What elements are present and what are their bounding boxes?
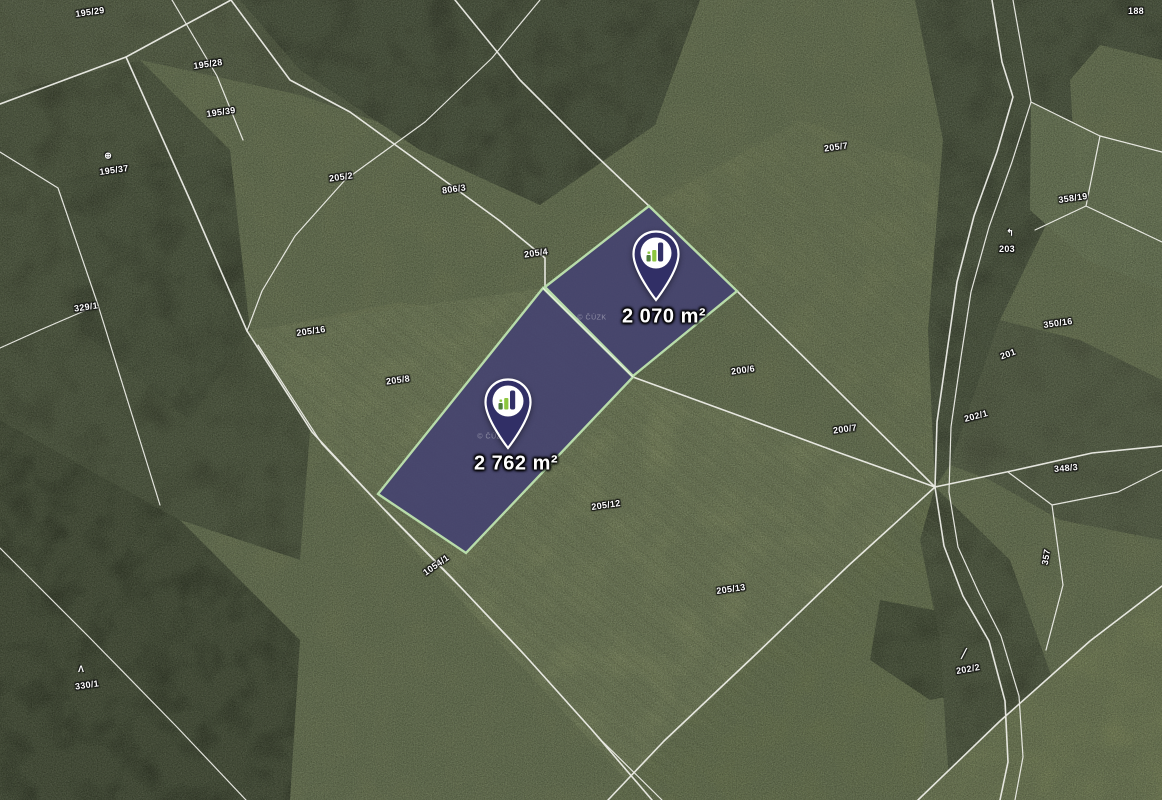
basemap-svg xyxy=(0,0,1162,800)
satellite-map-canvas[interactable]: © ČÚZK© ČÚZK 195/29195/28195/39195/37329… xyxy=(0,0,1162,800)
pin-parcel-2762[interactable] xyxy=(484,378,532,450)
pin-parcel-2070[interactable] xyxy=(632,230,680,302)
